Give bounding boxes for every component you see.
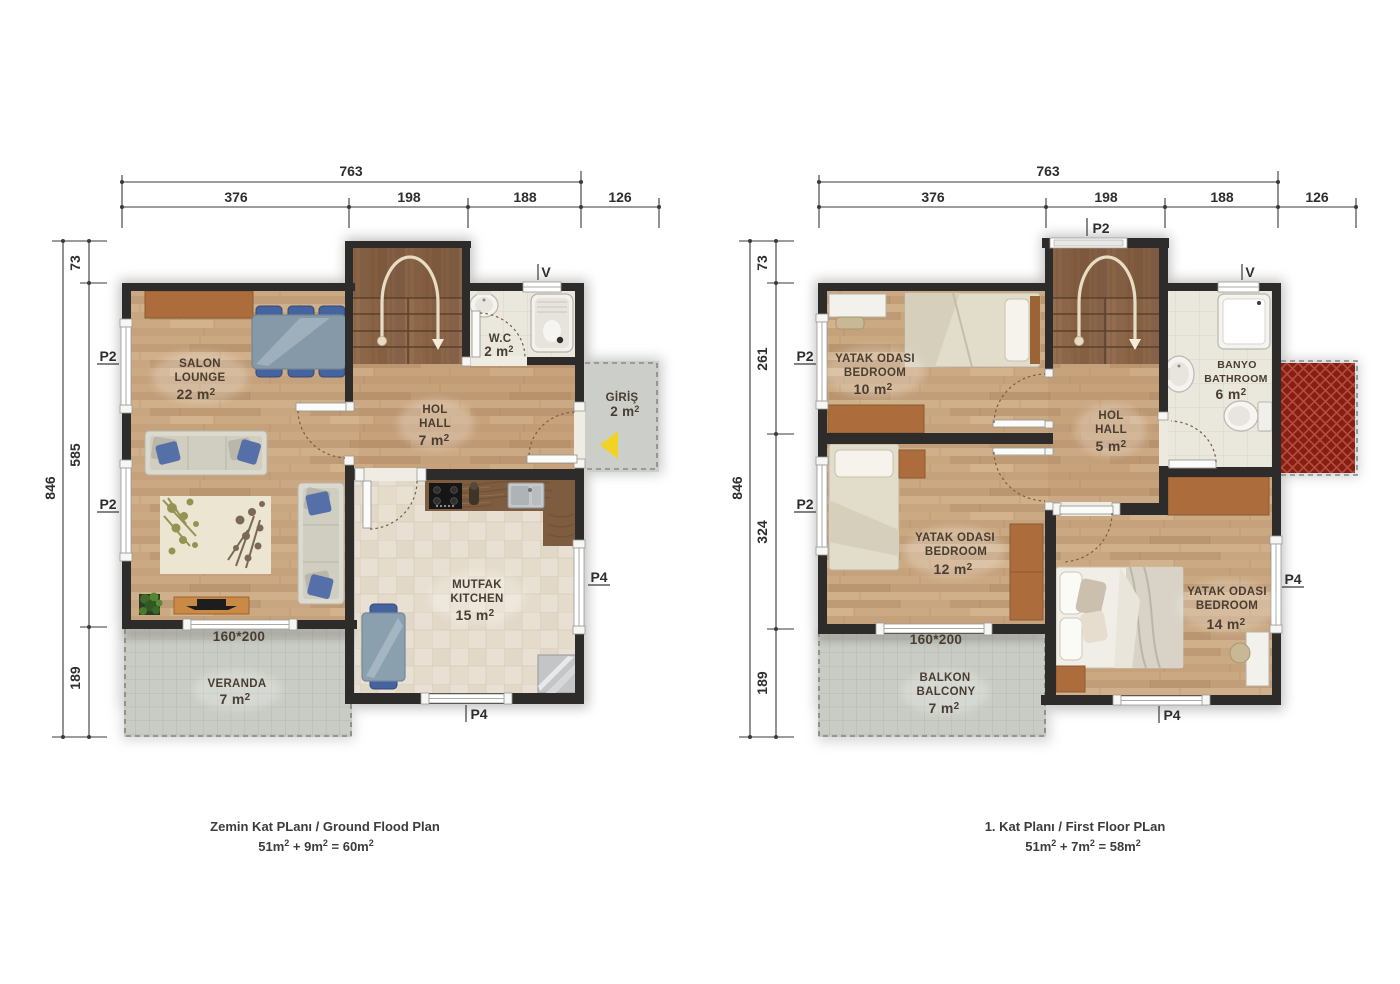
svg-text:189: 189 (754, 671, 770, 695)
svg-text:BANYO: BANYO (1217, 359, 1256, 371)
svg-text:763: 763 (339, 163, 363, 179)
svg-text:YATAK ODASI: YATAK ODASI (835, 353, 915, 365)
svg-text:HALL: HALL (1095, 424, 1127, 436)
svg-text:BALKON: BALKON (920, 672, 971, 684)
svg-text:846: 846 (729, 476, 745, 500)
svg-text:P2: P2 (796, 348, 813, 364)
svg-text:160*200: 160*200 (910, 632, 962, 647)
svg-text:P2: P2 (1092, 220, 1109, 236)
svg-text:261: 261 (754, 347, 770, 371)
svg-text:MUTFAK: MUTFAK (452, 579, 502, 591)
svg-text:73: 73 (754, 255, 770, 271)
svg-text:188: 188 (513, 189, 537, 205)
svg-text:126: 126 (608, 189, 632, 205)
svg-text:73: 73 (67, 255, 83, 271)
svg-text:P4: P4 (590, 569, 607, 585)
svg-text:BATHROOM: BATHROOM (1204, 373, 1267, 385)
svg-text:Zemin Kat PLanı / Ground Flood: Zemin Kat PLanı / Ground Flood Plan (210, 819, 440, 834)
svg-text:HALL: HALL (419, 418, 451, 430)
svg-text:V: V (541, 264, 551, 280)
svg-text:1. Kat Planı / First Floor PLa: 1. Kat Planı / First Floor PLan (985, 819, 1166, 834)
svg-text:P2: P2 (99, 496, 116, 512)
svg-text:BEDROOM: BEDROOM (1196, 600, 1258, 612)
svg-text:VERANDA: VERANDA (208, 678, 267, 690)
svg-text:51m2 + 7m2 = 58m2: 51m2 + 7m2 = 58m2 (1025, 838, 1141, 854)
svg-text:198: 198 (1094, 189, 1118, 205)
svg-text:376: 376 (224, 189, 248, 205)
svg-text:188: 188 (1210, 189, 1234, 205)
svg-text:P4: P4 (1284, 571, 1301, 587)
svg-text:HOL: HOL (422, 404, 447, 416)
svg-text:189: 189 (67, 666, 83, 690)
svg-text:126: 126 (1305, 189, 1329, 205)
svg-text:YATAK ODASI: YATAK ODASI (1187, 586, 1267, 598)
svg-text:160*200: 160*200 (213, 629, 265, 644)
svg-text:BALCONY: BALCONY (917, 686, 976, 698)
svg-text:BEDROOM: BEDROOM (925, 546, 987, 558)
svg-text:P2: P2 (99, 348, 116, 364)
svg-text:51m2 + 9m2 = 60m2: 51m2 + 9m2 = 60m2 (258, 838, 374, 854)
svg-text:324: 324 (754, 520, 770, 544)
svg-text:376: 376 (921, 189, 945, 205)
svg-text:BEDROOM: BEDROOM (844, 367, 906, 379)
svg-text:LOUNGE: LOUNGE (175, 372, 226, 384)
svg-text:P4: P4 (1163, 707, 1180, 723)
svg-text:585: 585 (67, 443, 83, 467)
svg-text:GİRİŞ: GİRİŞ (606, 391, 639, 404)
svg-text:846: 846 (42, 476, 58, 500)
svg-text:KITCHEN: KITCHEN (450, 593, 503, 605)
svg-text:P2: P2 (796, 496, 813, 512)
svg-text:P4: P4 (470, 706, 487, 722)
svg-text:198: 198 (397, 189, 421, 205)
svg-text:763: 763 (1036, 163, 1060, 179)
svg-text:SALON: SALON (179, 358, 221, 370)
svg-text:HOL: HOL (1098, 410, 1123, 422)
svg-text:V: V (1245, 264, 1255, 280)
svg-text:YATAK ODASI: YATAK ODASI (915, 532, 995, 544)
